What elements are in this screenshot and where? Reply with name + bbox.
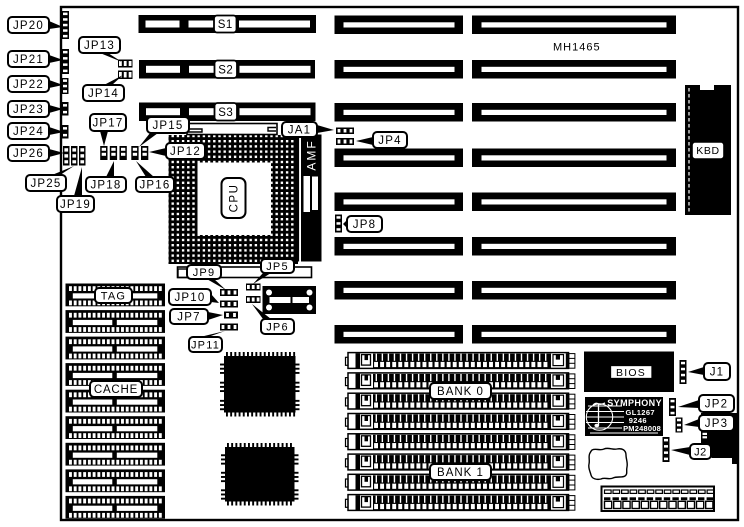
svg-text:S3: S3 — [218, 107, 233, 119]
svg-text:JP6: JP6 — [266, 321, 289, 333]
svg-text:SYMPHONY: SYMPHONY — [607, 398, 662, 408]
svg-text:JP13: JP13 — [84, 40, 115, 52]
svg-text:JP10: JP10 — [174, 292, 205, 304]
svg-text:JP23: JP23 — [13, 104, 44, 116]
svg-text:CPU: CPU — [229, 184, 241, 213]
svg-text:AMF: AMF — [305, 139, 319, 170]
svg-text:JP2: JP2 — [705, 399, 728, 411]
svg-text:JA1: JA1 — [288, 125, 311, 137]
svg-text:BIOS: BIOS — [616, 367, 646, 379]
svg-text:JP7: JP7 — [177, 312, 200, 324]
svg-text:S2: S2 — [218, 64, 233, 76]
svg-text:JP19: JP19 — [60, 199, 91, 211]
svg-text:JP9: JP9 — [193, 267, 216, 279]
svg-text:JP4: JP4 — [378, 135, 401, 147]
svg-text:MH1465: MH1465 — [553, 42, 601, 54]
svg-text:TAG: TAG — [101, 290, 126, 302]
svg-text:JP25: JP25 — [30, 178, 61, 190]
svg-text:JP8: JP8 — [353, 219, 376, 231]
svg-text:JP12: JP12 — [170, 146, 201, 158]
svg-text:J2: J2 — [694, 446, 707, 458]
svg-text:JP16: JP16 — [139, 180, 170, 192]
svg-text:JP24: JP24 — [13, 126, 44, 138]
svg-text:PM248008: PM248008 — [623, 424, 661, 433]
svg-text:BANK 0: BANK 0 — [437, 386, 484, 398]
svg-text:KBD: KBD — [696, 145, 719, 157]
svg-text:S1: S1 — [218, 19, 233, 31]
svg-text:JP5: JP5 — [266, 261, 289, 273]
svg-text:JP22: JP22 — [13, 79, 44, 91]
svg-text:JP18: JP18 — [90, 180, 121, 192]
svg-text:JP21: JP21 — [13, 54, 44, 66]
svg-text:BANK 1: BANK 1 — [437, 467, 484, 479]
svg-text:JP17: JP17 — [92, 118, 123, 130]
svg-text:JP20: JP20 — [13, 20, 44, 32]
svg-text:JP11: JP11 — [191, 339, 220, 351]
svg-text:JP14: JP14 — [88, 88, 119, 100]
svg-text:J1: J1 — [710, 367, 725, 379]
svg-text:JP3: JP3 — [705, 418, 728, 430]
svg-text:CACHE: CACHE — [94, 384, 138, 396]
svg-text:JP15: JP15 — [152, 120, 183, 132]
svg-text:JP26: JP26 — [13, 148, 44, 160]
